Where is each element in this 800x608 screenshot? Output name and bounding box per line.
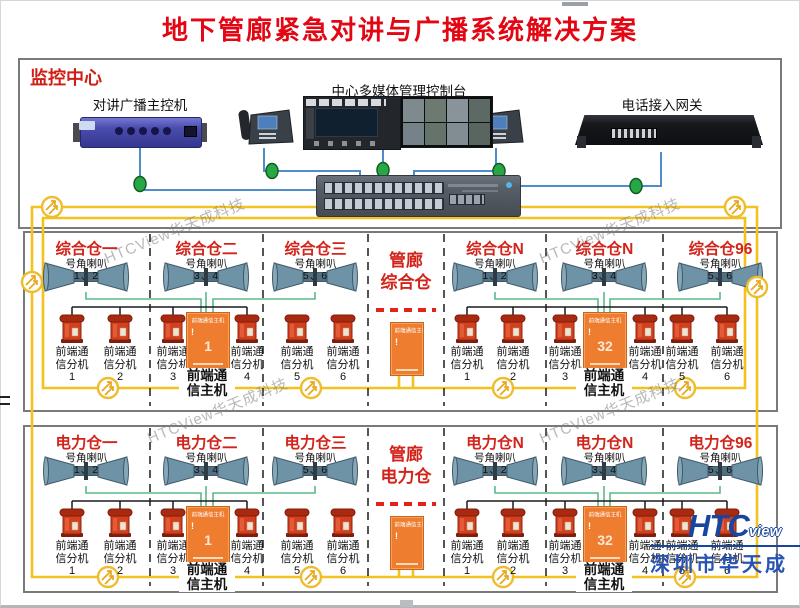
speaker-lines-top: [86, 292, 720, 312]
phone-caption: 前端通信分机1: [444, 540, 490, 578]
gallery-host-unit: 前端通信主机!: [390, 322, 424, 376]
page-title: 地下管廊紧急对讲与广播系统解决方案: [0, 10, 800, 47]
device-logo: [79, 121, 95, 130]
speaker-numbers: 3、4: [546, 462, 663, 477]
phone-caption: 前端通信分机1: [49, 346, 95, 384]
company-name: 深圳市华天成: [650, 548, 800, 577]
intercom-main-controller-device: [73, 116, 207, 148]
front-end-host-unit: 前端通信主机! 1: [186, 506, 230, 564]
logo-underline: [650, 545, 800, 547]
speaker-numbers: 5、6: [663, 462, 778, 477]
console-label: 中心多媒体管理控制台: [308, 80, 490, 100]
front-end-host-unit: 前端通信主机! 1: [186, 312, 230, 370]
htcview-logo: HTCview: [688, 508, 781, 544]
host-caption: 前端通信主机: [179, 368, 235, 398]
phone-caption: 前端通信分机1: [444, 346, 490, 384]
cctv-wall-screen: [400, 96, 493, 148]
gallery-title-line2: 综合仓: [368, 268, 444, 293]
speaker-numbers: 3、4: [546, 268, 663, 283]
phone-caption: 前端通信分机2: [97, 346, 143, 384]
phone-caption: 前端通信分机2: [490, 346, 536, 384]
speaker-numbers: 1、2: [444, 268, 546, 283]
front-end-host-unit: 前端通信主机! 32: [583, 312, 627, 370]
speaker-lines-bottom: [86, 486, 720, 506]
speaker-numbers: 5、6: [263, 462, 368, 477]
speaker-numbers: 3、4: [150, 462, 263, 477]
phone-caption: 前端通信分机6: [320, 540, 366, 578]
speaker-numbers: 1、2: [444, 462, 546, 477]
speaker-numbers: 3、4: [150, 268, 263, 283]
phone-caption: 前端通信分机1: [49, 540, 95, 578]
desk-phone-left: [238, 109, 293, 144]
host-caption: 前端通信主机: [179, 562, 235, 592]
switch-led: [506, 182, 512, 188]
phone-caption: 前端通信分机2: [490, 540, 536, 578]
phone-caption: 前端通信分机5: [274, 540, 320, 578]
monitoring-center-label: 监控中心: [30, 64, 102, 90]
phone-caption: 前端通信分机6: [704, 346, 750, 384]
front-end-host-unit: 前端通信主机! 32: [583, 506, 627, 564]
speaker-numbers: 5、6: [663, 268, 778, 283]
gallery-host-unit: 前端通信主机!: [390, 516, 424, 570]
phone-caption: 前端通信分机2: [97, 540, 143, 578]
main-controller-label: 对讲广播主控机: [60, 94, 220, 114]
speaker-numbers: 5、6: [263, 268, 368, 283]
gateway-label: 电话接入网关: [592, 94, 732, 114]
diagram-page: { "title": "地下管廊紧急对讲与广播系统解决方案", "monitor…: [0, 0, 800, 608]
gallery-title-line2: 电力仓: [368, 462, 444, 487]
telephone-gateway-device: [575, 108, 763, 150]
management-console-screen: [303, 96, 401, 150]
phone-caption: 前端通信分机6: [320, 346, 366, 384]
ethernet-switch: [316, 175, 521, 217]
speaker-numbers: 1、2: [23, 268, 150, 283]
speaker-numbers: 1、2: [23, 462, 150, 477]
host-caption: 前端通信主机: [576, 562, 632, 592]
